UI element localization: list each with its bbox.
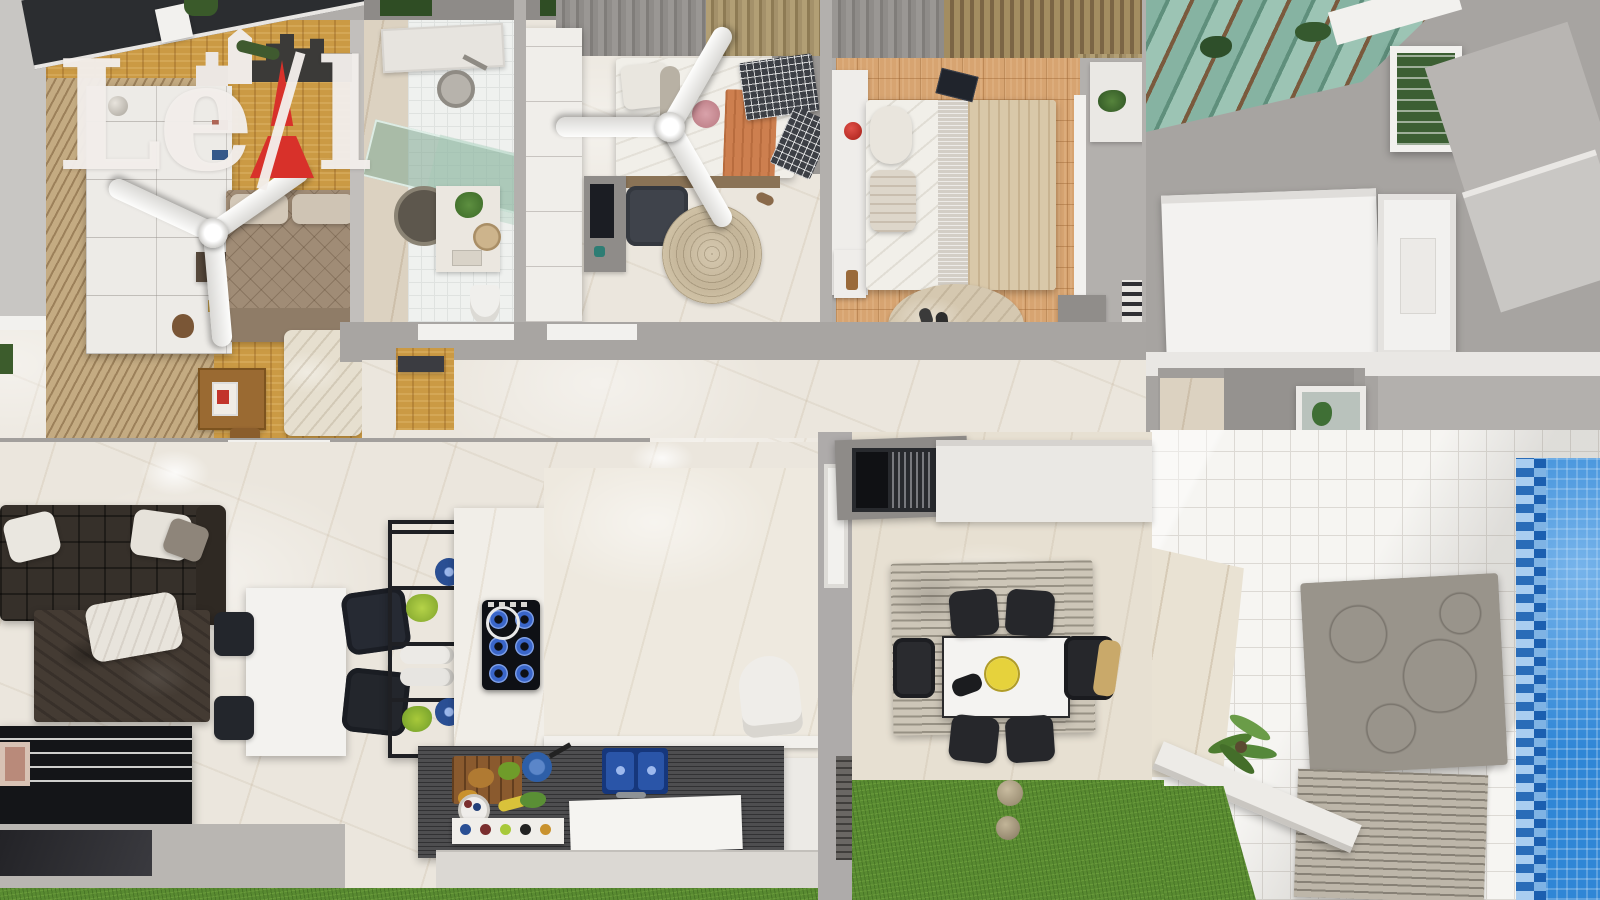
microwave-door: [856, 452, 888, 508]
master-pillow-bottom: [870, 170, 916, 232]
left-hedge-patch: [0, 344, 13, 374]
garage-roof-plane: [1161, 188, 1382, 368]
bedroom2-monitor: [590, 184, 614, 238]
bedroom2-desk-decor: [594, 246, 605, 257]
spice-jar: [500, 824, 511, 835]
backyard-grass-strip: [0, 888, 840, 900]
garden-stone-pot-1: [997, 780, 1023, 806]
spice-jar: [520, 824, 531, 835]
fan-hub: [198, 218, 228, 248]
watermark-text-l: l: [316, 40, 369, 192]
floorplan-render-scene: Le l: [0, 0, 1600, 900]
toilet: [470, 285, 500, 325]
watermark-tower-letter-a: [246, 60, 318, 180]
pool-mosaic-border: [1516, 458, 1534, 900]
spice-jar: [480, 824, 491, 835]
master-beige-blanket: [968, 100, 1056, 290]
swimming-pool-water: [1546, 458, 1600, 900]
master-knit-runner: [938, 100, 968, 290]
spice-jar: [460, 824, 471, 835]
left-window-sill: [0, 316, 46, 330]
garden-stone-pot-2: [996, 816, 1020, 840]
patio-chair-top-2: [1004, 588, 1055, 637]
patio-chair-top-1: [948, 588, 1000, 638]
bedroom2-pink-cushion: [692, 100, 720, 128]
fan-hub: [655, 112, 685, 142]
sink-drain: [647, 766, 656, 775]
rack-towel-roll-2: [400, 668, 454, 686]
blue-pan: [522, 752, 552, 782]
patio-chair-bottom-2: [1004, 714, 1055, 763]
microwave-vents: [892, 452, 934, 508]
kitchen-sink-blue: [602, 748, 668, 794]
master-curtain-gray: [832, 0, 944, 58]
entry-bench: [398, 356, 444, 372]
floor-light-glare: [140, 450, 210, 496]
tower-lower-trapezoid: [250, 136, 314, 178]
hedge-green-1: [380, 0, 432, 16]
sideboard-picture-frame: [0, 742, 30, 786]
patio-chair-left: [893, 638, 935, 698]
bowl-berries-red: [464, 800, 472, 808]
rack-towel-roll-1: [400, 646, 454, 664]
vanity-tray: [452, 250, 482, 266]
bedroom1-ceiling-fan: [198, 218, 228, 248]
sofa-armrest: [196, 505, 226, 625]
roof-bush: [184, 0, 218, 16]
dining-chair-left-2: [214, 696, 254, 740]
cooktop-controls: [488, 602, 532, 607]
master-red-kettle: [844, 122, 862, 140]
hallway-door-sill-1: [418, 324, 514, 340]
bedroom1-picture-red-art: [217, 390, 229, 404]
bowl-berries-blue: [473, 803, 481, 811]
tv-screen-flat: [0, 830, 152, 876]
master-wood-slat-ceiling: [944, 0, 1146, 58]
bathroom-stool: [473, 223, 501, 251]
kettle-on-cooktop: [486, 606, 520, 640]
sink-drain: [616, 766, 625, 775]
dining-table: [246, 588, 346, 756]
palm-trunk: [1235, 741, 1247, 753]
watermark-text-le: Le: [56, 40, 250, 192]
dining-chair-left-1: [214, 612, 254, 656]
gourmet-counter-white: [936, 440, 1152, 522]
teddy-bear: [172, 314, 194, 338]
spice-jar: [540, 824, 551, 835]
bedroom2-ceiling-fan: [655, 112, 685, 142]
pool-mosaic-border-2: [1534, 458, 1546, 900]
nightstand-leather-tag: [846, 270, 858, 290]
microwave-grill: [852, 448, 938, 512]
patio-chair-bottom-1: [948, 714, 1001, 765]
hallway-door-sill-2: [547, 324, 637, 340]
cooktop-burner: [515, 637, 534, 656]
wall-bathroom-bedroom2: [514, 0, 526, 348]
outdoor-gray-rug: [1300, 573, 1508, 775]
cooktop-burner: [489, 664, 508, 683]
master-pillow-top: [870, 106, 912, 164]
cooktop-burner: [515, 664, 534, 683]
yellow-food-plate: [984, 656, 1020, 692]
sink-faucet: [616, 792, 646, 798]
shower-head: [437, 70, 475, 108]
entry-door-inner-panel: [1400, 238, 1436, 314]
